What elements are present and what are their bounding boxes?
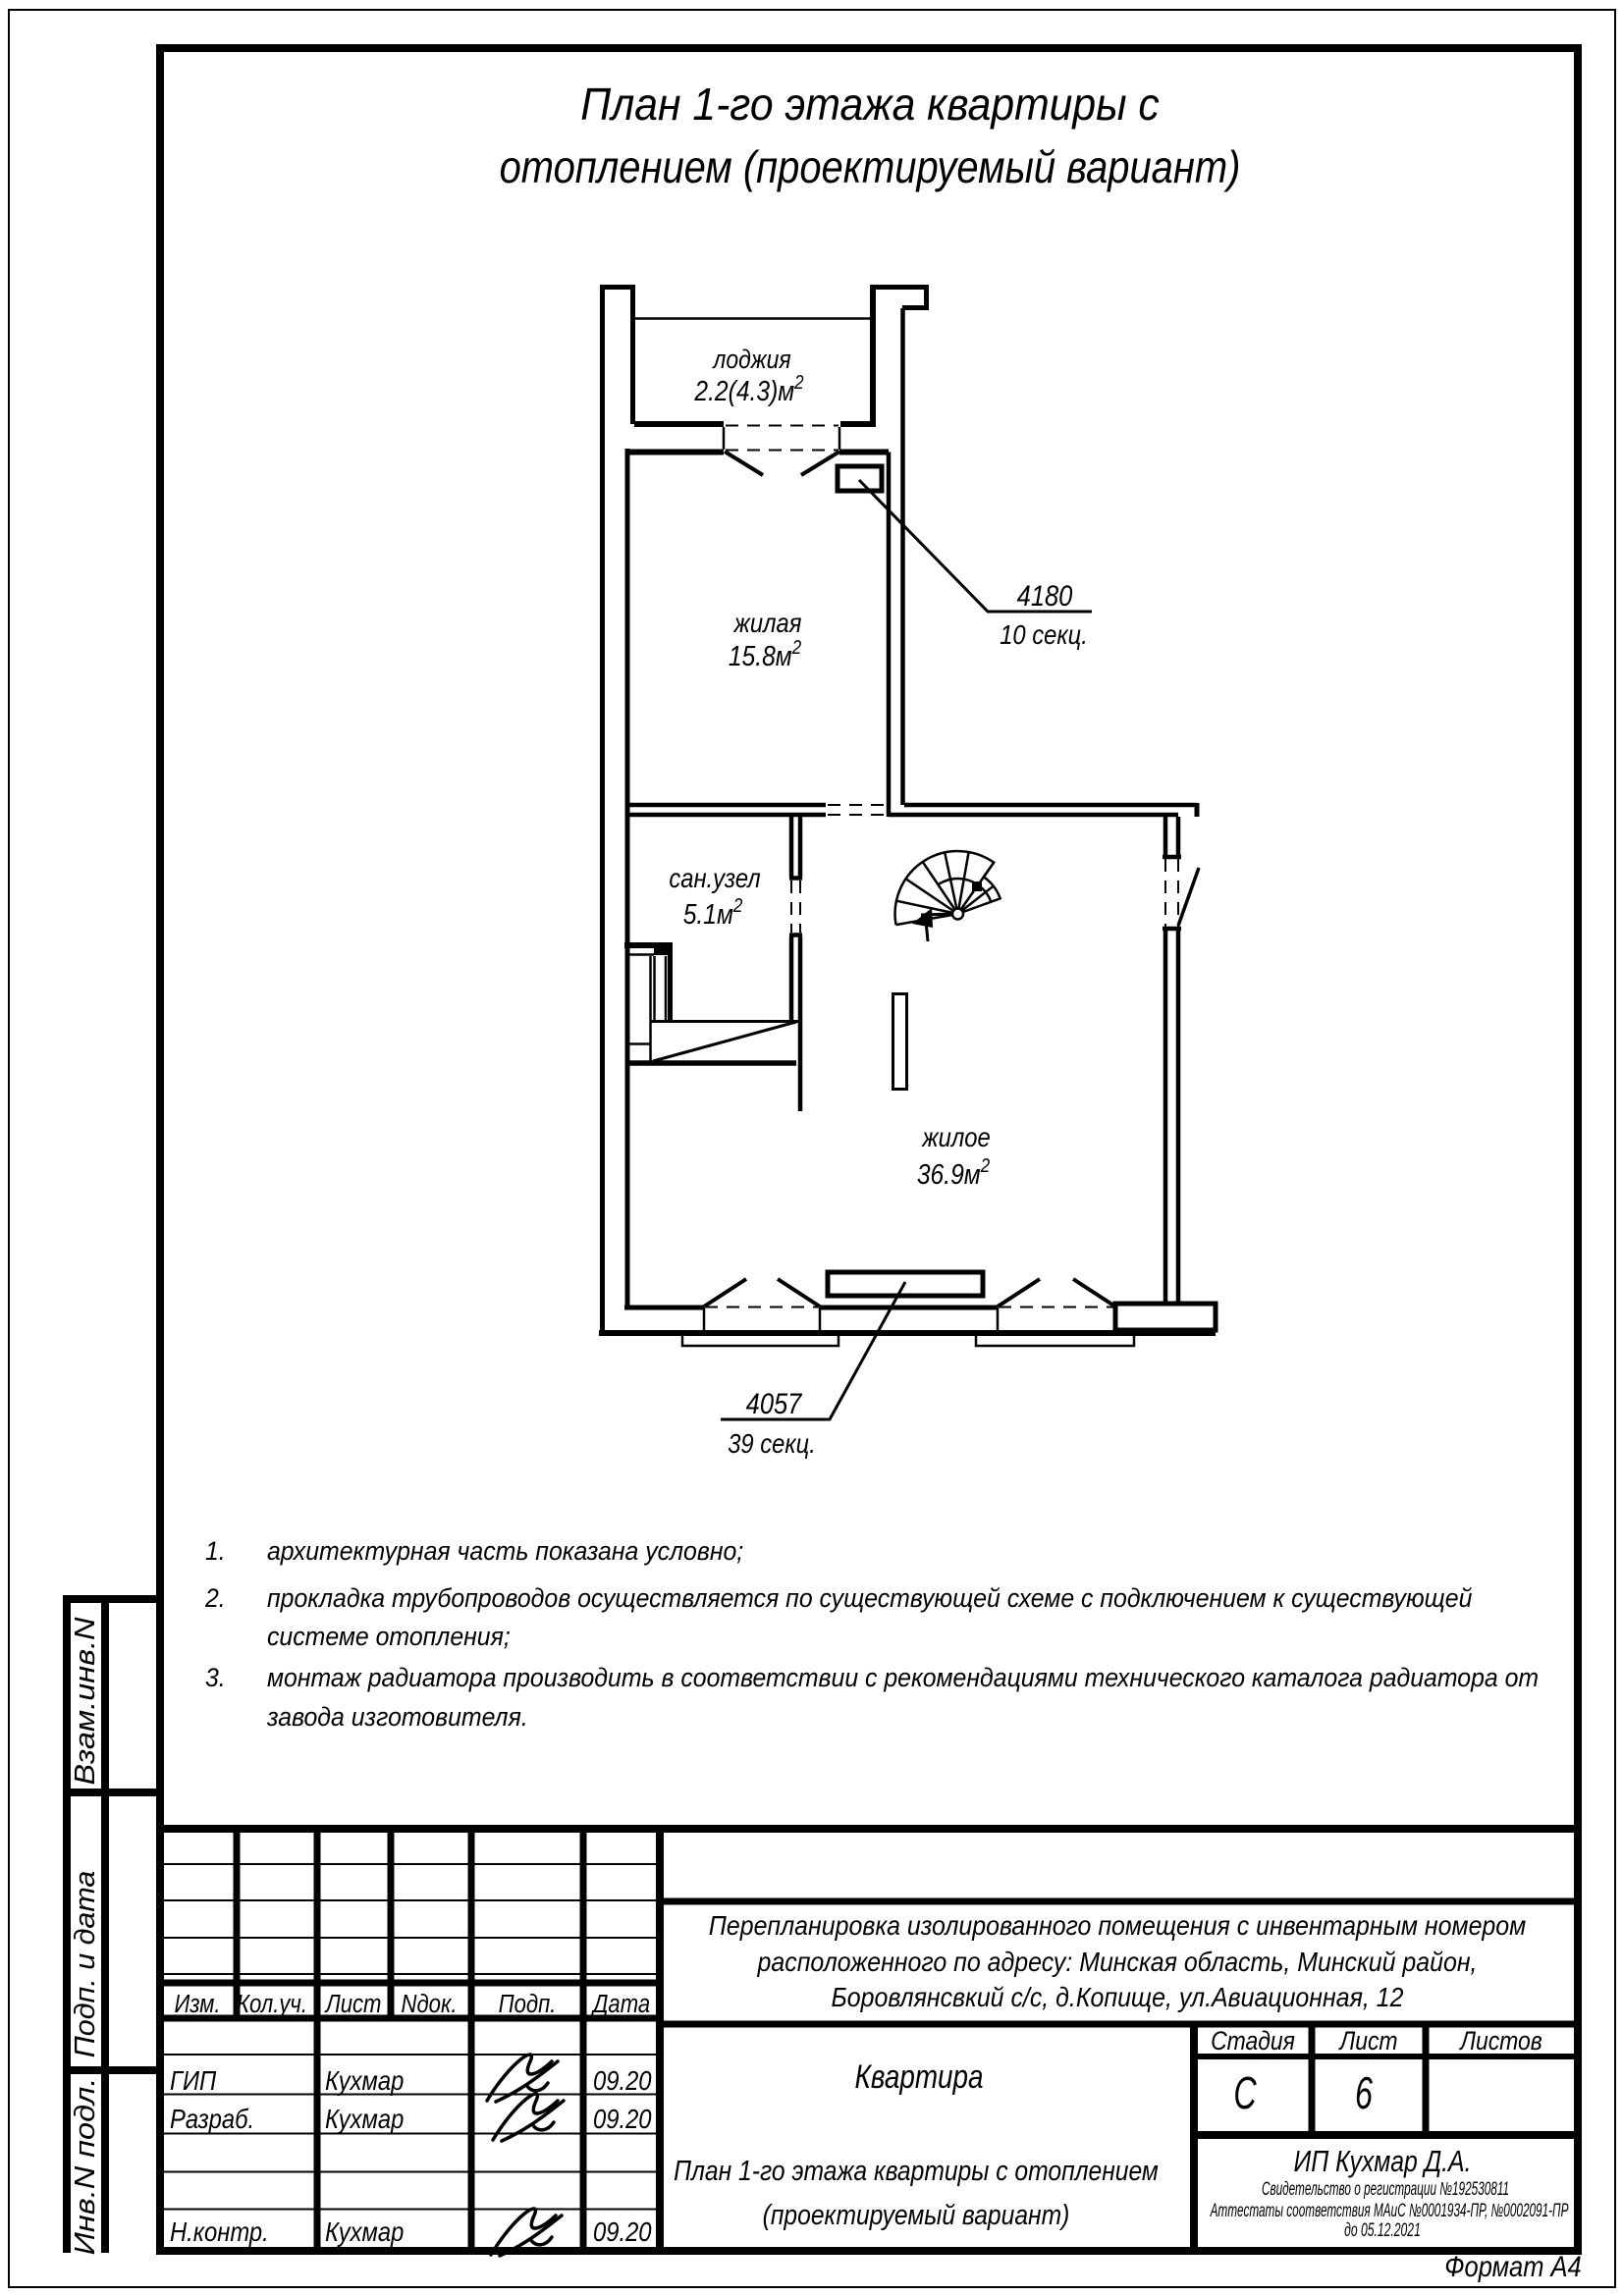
svg-text:отоплением (проектируемый вари: отоплением (проектируемый вариант) xyxy=(500,142,1241,192)
svg-text:2.2(4.3)м2: 2.2(4.3)м2 xyxy=(693,371,804,407)
svg-text:Кол.уч.: Кол.уч. xyxy=(237,1990,307,2018)
svg-text:3.: 3. xyxy=(205,1664,226,1692)
svg-text:жилая: жилая xyxy=(733,607,802,638)
svg-text:ГИП: ГИП xyxy=(170,2064,216,2096)
svg-text:6: 6 xyxy=(1355,2068,1374,2118)
svg-text:сан.узел: сан.узел xyxy=(669,862,761,893)
svg-text:Квартира: Квартира xyxy=(854,2057,983,2095)
svg-text:жилое: жилое xyxy=(921,1121,990,1152)
svg-text:Кухмар: Кухмар xyxy=(325,2103,404,2134)
svg-text:системе отопления;: системе отопления; xyxy=(267,1623,511,1651)
svg-text:39 секц.: 39 секц. xyxy=(728,1427,816,1459)
svg-text:Листов: Листов xyxy=(1458,2026,1542,2056)
svg-text:(проектируемый вариант): (проектируемый вариант) xyxy=(763,2199,1070,2230)
svg-text:Разраб.: Разраб. xyxy=(170,2103,254,2134)
svg-text:4180: 4180 xyxy=(1017,579,1073,612)
svg-text:расположенного по адресу: Минс: расположенного по адресу: Минская област… xyxy=(757,1947,1478,1978)
svg-text:2.: 2. xyxy=(204,1584,226,1613)
svg-text:Лист: Лист xyxy=(324,1990,382,2018)
svg-text:до 05.12.2021: до 05.12.2021 xyxy=(1344,2221,1421,2241)
svg-text:лоджия: лоджия xyxy=(712,345,791,374)
svg-text:09.20: 09.20 xyxy=(593,2103,652,2134)
svg-text:15.8м2: 15.8м2 xyxy=(729,636,802,672)
svg-text:09.20: 09.20 xyxy=(593,2064,652,2096)
svg-text:План 1-го этажа квартиры с ото: План 1-го этажа квартиры с отоплением xyxy=(674,2155,1159,2186)
svg-text:10 секц.: 10 секц. xyxy=(1000,618,1088,650)
svg-text:прокладка трубопроводов осущес: прокладка трубопроводов осуществляется п… xyxy=(267,1584,1472,1613)
svg-text:монтаж радиатора производить в: монтаж радиатора производить в соответст… xyxy=(267,1664,1539,1692)
svg-text:36.9м2: 36.9м2 xyxy=(917,1154,991,1191)
svg-text:Аттестаты соответствия МАиС №0: Аттестаты соответствия МАиС №0001934-ПР,… xyxy=(1210,2201,1569,2220)
svg-text:Перепланировка изолированного: Перепланировка изолированного помещения … xyxy=(709,1910,1526,1942)
svg-text:План 1-го этажа квартиры с: План 1-го этажа квартиры с xyxy=(580,80,1159,131)
svg-text:Взам.инв.N: Взам.инв.N xyxy=(69,1617,101,1786)
svg-text:Подп.: Подп. xyxy=(499,1990,557,2018)
svg-text:архитектурная часть показана у: архитектурная часть показана условно; xyxy=(267,1537,743,1566)
svg-text:Кухмар: Кухмар xyxy=(325,2216,404,2247)
svg-text:Боровлянсвкий с/с, д.Копище, у: Боровлянсвкий с/с, д.Копище, ул.Авиацион… xyxy=(832,1982,1404,2013)
svg-text:Свидетельство о регистрации №1: Свидетельство о регистрации №192530811 xyxy=(1262,2179,1509,2199)
svg-text:5.1м2: 5.1м2 xyxy=(683,894,743,931)
svg-text:Дата: Дата xyxy=(590,1990,650,2018)
svg-text:Изм.: Изм. xyxy=(174,1990,220,2018)
svg-text:ИП Кухмар Д.А.: ИП Кухмар Д.А. xyxy=(1294,2144,1472,2177)
svg-text:Формат А4: Формат А4 xyxy=(1444,2250,1581,2282)
svg-text:Подп. и дата: Подп. и дата xyxy=(70,1871,101,2058)
svg-text:завода изготовителя.: завода изготовителя. xyxy=(266,1703,528,1732)
svg-text:Инв.N подл.: Инв.N подл. xyxy=(69,2078,101,2256)
svg-text:09.20: 09.20 xyxy=(593,2216,652,2247)
svg-text:4057: 4057 xyxy=(746,1387,803,1419)
svg-text:1.: 1. xyxy=(205,1537,226,1566)
svg-text:Стадия: Стадия xyxy=(1211,2026,1295,2056)
svg-text:Н.контр.: Н.контр. xyxy=(170,2216,269,2247)
svg-text:Лист: Лист xyxy=(1338,2026,1398,2056)
svg-text:Кухмар: Кухмар xyxy=(325,2064,404,2096)
svg-text:С: С xyxy=(1233,2068,1257,2118)
svg-text:Nдок.: Nдок. xyxy=(401,1990,457,2018)
